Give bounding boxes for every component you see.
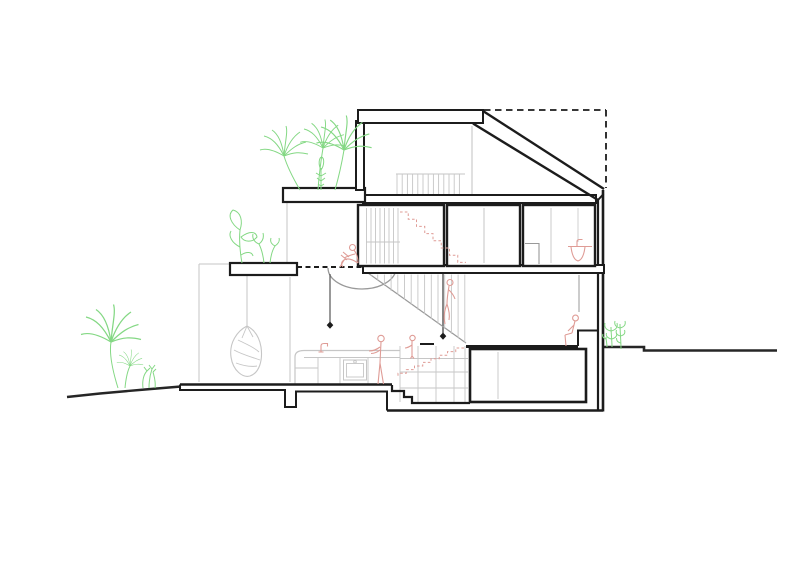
pendant-light-left bbox=[327, 322, 334, 329]
basement-room bbox=[470, 349, 586, 402]
attic-floor-slab bbox=[363, 195, 596, 203]
shrub-left bbox=[143, 365, 156, 388]
roof-planter-slab bbox=[283, 188, 365, 202]
bench-step-right bbox=[578, 331, 598, 347]
hanging-egg-chair bbox=[231, 276, 262, 376]
ground-line-left bbox=[67, 387, 181, 398]
glass-wall-lines bbox=[199, 203, 290, 382]
planter-box-foliage bbox=[230, 210, 279, 263]
figure-seated-right bbox=[565, 315, 578, 346]
understair-shelves bbox=[400, 346, 468, 402]
main-stair bbox=[368, 273, 466, 343]
attic-front-wall bbox=[356, 121, 364, 190]
drawing-page bbox=[0, 0, 800, 565]
figure-reading bbox=[340, 245, 358, 268]
sloped-roof-lower-edge bbox=[473, 124, 598, 201]
attic-stair-rail bbox=[396, 126, 472, 195]
ground-line-right bbox=[604, 347, 777, 351]
oven bbox=[344, 360, 367, 380]
planter-beam bbox=[230, 263, 297, 275]
garden-palm-left bbox=[81, 305, 143, 389]
sloped-roof-upper-edge bbox=[483, 111, 604, 189]
kitchen-counter bbox=[295, 351, 400, 385]
figure-cooking bbox=[369, 335, 384, 384]
architectural-section-canvas bbox=[0, 0, 800, 565]
figure-on-stairs bbox=[444, 280, 455, 325]
seedlings-right bbox=[603, 321, 626, 349]
terrace-foundation bbox=[180, 385, 387, 411]
pendant-light-center bbox=[440, 333, 447, 340]
figure-child bbox=[405, 335, 415, 358]
flat-roof-slab bbox=[358, 110, 483, 123]
roof-terrace-palms bbox=[260, 116, 372, 191]
upper-room-3 bbox=[523, 205, 595, 266]
